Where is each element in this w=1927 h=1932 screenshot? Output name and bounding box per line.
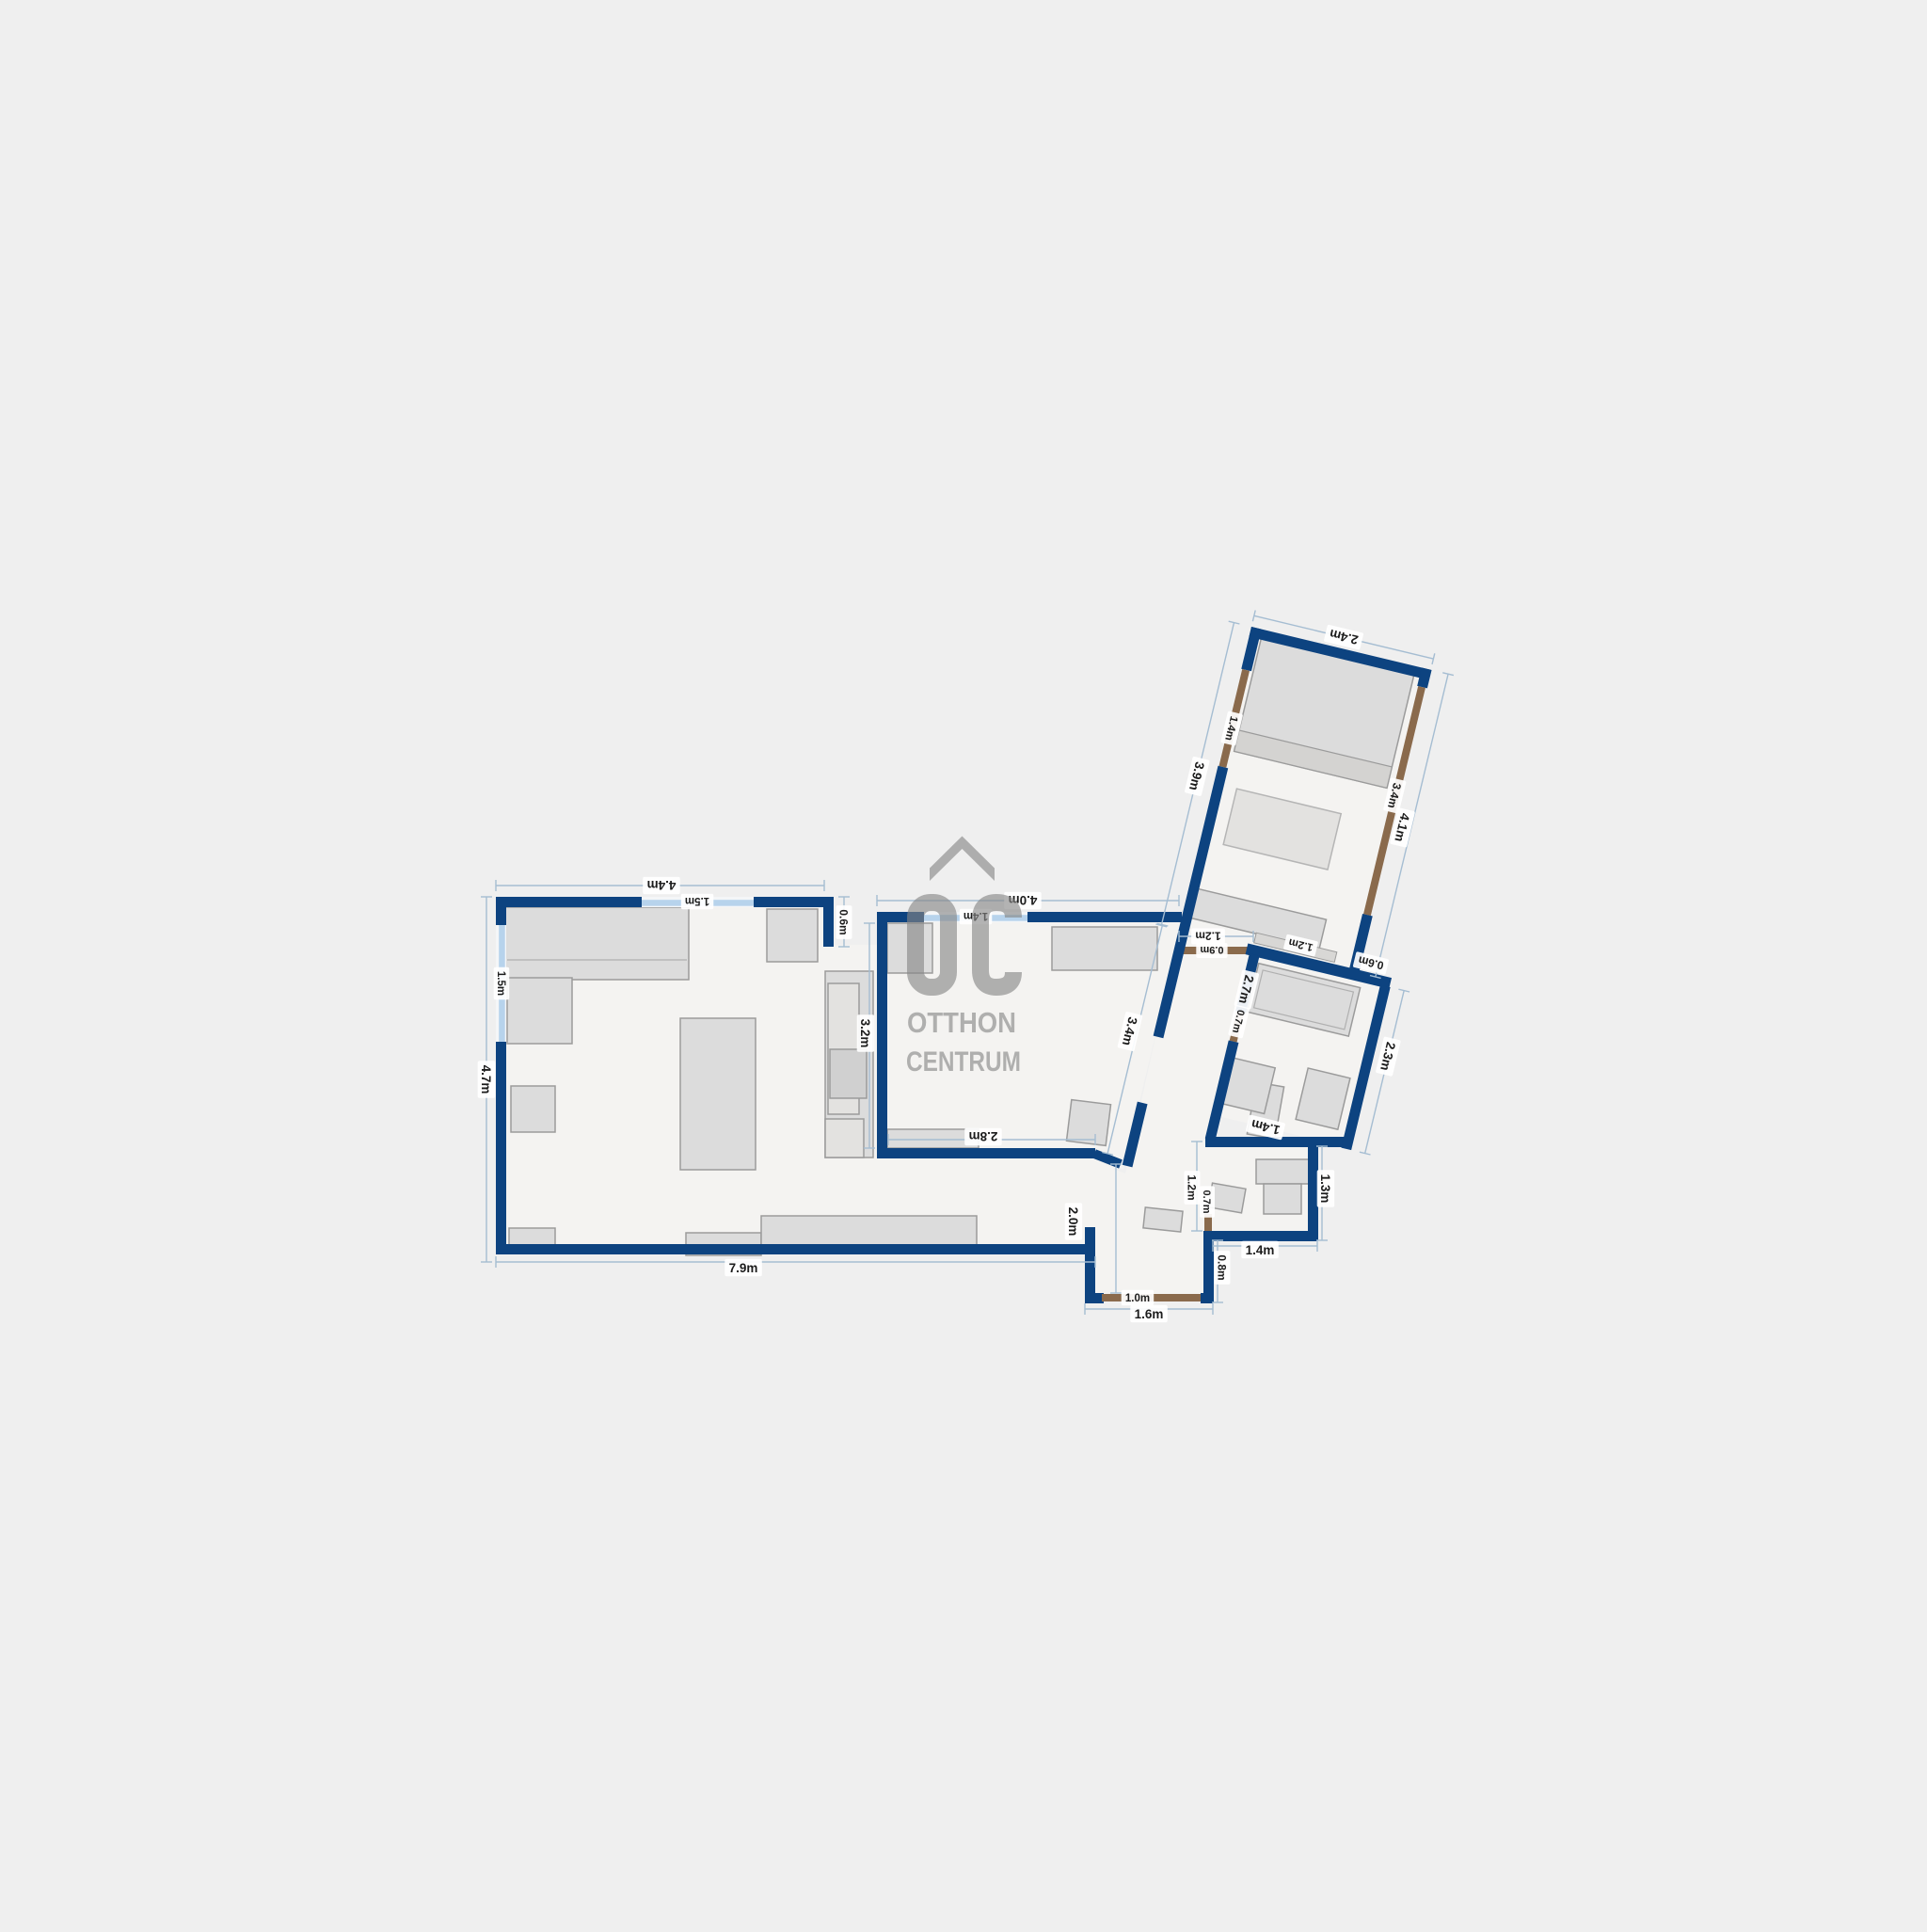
svg-text:0.9m: 0.9m <box>1200 944 1223 955</box>
svg-text:2.0m: 2.0m <box>1066 1207 1080 1237</box>
svg-text:0.6m: 0.6m <box>837 909 851 934</box>
svg-text:1.2m: 1.2m <box>1195 930 1220 943</box>
svg-text:1.2m: 1.2m <box>1186 1174 1199 1200</box>
svg-text:1.0m: 1.0m <box>1125 1293 1150 1304</box>
svg-text:4.7m: 4.7m <box>479 1065 493 1094</box>
svg-text:1.4m: 1.4m <box>1246 1243 1275 1257</box>
svg-text:1.3m: 1.3m <box>1318 1174 1332 1204</box>
svg-text:1.6m: 1.6m <box>1135 1307 1164 1321</box>
svg-text:7.9m: 7.9m <box>729 1261 758 1275</box>
svg-text:OTTHON: OTTHON <box>907 1006 1016 1039</box>
svg-text:0.8m: 0.8m <box>1216 1254 1229 1280</box>
svg-text:2.8m: 2.8m <box>969 1129 998 1143</box>
svg-text:1.5m: 1.5m <box>495 971 506 996</box>
svg-text:CENTRUM: CENTRUM <box>906 1046 1021 1078</box>
svg-text:1.5m: 1.5m <box>685 895 709 906</box>
svg-text:4.4m: 4.4m <box>647 878 677 892</box>
svg-text:3.2m: 3.2m <box>858 1019 872 1048</box>
svg-text:0.7m: 0.7m <box>1201 1190 1212 1213</box>
